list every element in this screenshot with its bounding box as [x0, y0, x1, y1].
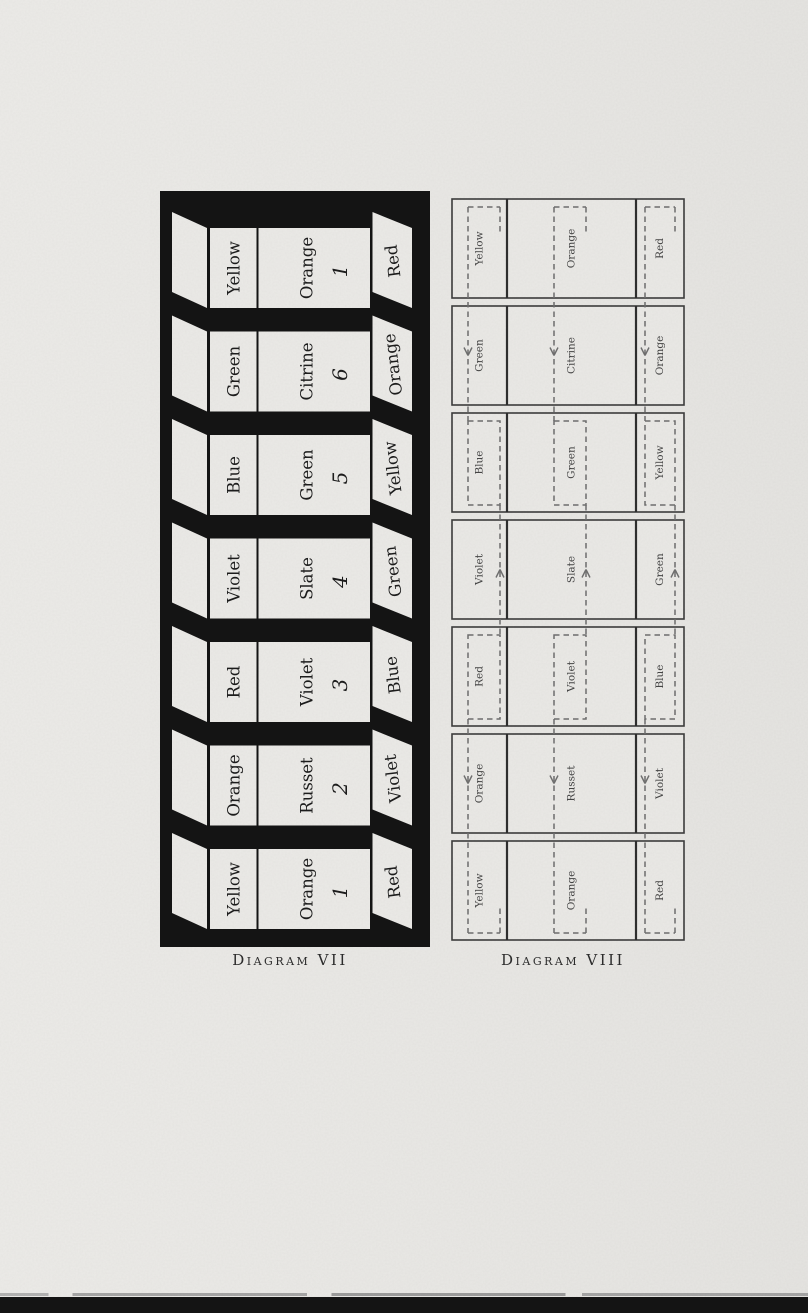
- book-page: YellowOrange1RedGreenCitrine6OrangeBlueG…: [0, 0, 808, 1313]
- viii-cell-label: Slate: [566, 556, 578, 583]
- vii-cell1-label: Orange: [225, 754, 244, 816]
- viii-cell-label: Green: [566, 446, 578, 479]
- vii-left-flap: [172, 419, 207, 515]
- viii-cell-label: Orange: [566, 229, 578, 269]
- vii-cell1-label: Blue: [225, 456, 244, 494]
- vii-left-flap: [172, 730, 207, 826]
- diagram-vii-caption: Diagram VII: [165, 951, 415, 969]
- viii-cell-label: Yellow: [474, 873, 486, 908]
- viii-cell-label: Green: [654, 553, 666, 586]
- viii-cell-label: Green: [474, 339, 486, 372]
- viii-cell-label: Red: [654, 880, 666, 901]
- viii-cell-label: Orange: [566, 871, 578, 911]
- vii-left-flap: [172, 833, 207, 929]
- vii-cell2-number: 2: [328, 782, 352, 796]
- viii-cell-label: Citrine: [566, 337, 578, 374]
- vii-right-flap-label: Red: [382, 243, 405, 278]
- viii-cell-label: Orange: [474, 764, 486, 804]
- viii-cell-label: Red: [474, 666, 486, 687]
- viii-cell-label: Russet: [566, 765, 578, 802]
- vii-cell2-number: 3: [328, 679, 352, 692]
- vii-cell2-label: Green: [298, 449, 317, 501]
- diagrams-canvas: YellowOrange1RedGreenCitrine6OrangeBlueG…: [0, 0, 808, 1313]
- vii-cell2-label: Russet: [298, 757, 317, 814]
- scan-bottom-bar: [0, 1297, 808, 1313]
- vii-cell1-label: Green: [225, 346, 244, 398]
- vii-cell1-label: Violet: [225, 554, 244, 604]
- viii-cell-label: Yellow: [474, 231, 486, 266]
- vii-cell2-label: Citrine: [298, 342, 317, 400]
- vii-left-flap: [172, 523, 207, 619]
- viii-cell-label: Blue: [474, 450, 486, 474]
- vii-cell1-label: Red: [225, 665, 244, 698]
- viii-cell-label: Red: [654, 238, 666, 259]
- vii-right-flap-label: Red: [382, 864, 405, 899]
- vii-cell2-label: Violet: [298, 657, 317, 707]
- viii-cell-label: Yellow: [654, 445, 666, 480]
- vii-cell2-number: 1: [328, 886, 352, 899]
- vii-cell2-number: 5: [328, 472, 352, 485]
- vii-left-flap: [172, 212, 207, 308]
- vii-cell2-number: 4: [328, 575, 352, 589]
- vii-left-flap: [172, 316, 207, 412]
- vii-left-flap: [172, 626, 207, 722]
- vii-cell2-label: Slate: [298, 557, 317, 600]
- viii-cell-label: Orange: [654, 336, 666, 376]
- viii-cell-label: Violet: [654, 767, 666, 800]
- vii-cell2-label: Orange: [298, 237, 317, 299]
- vii-cell1-label: Yellow: [225, 241, 244, 296]
- vii-cell2-label: Orange: [298, 858, 317, 920]
- scan-artifact-line: [0, 1293, 808, 1296]
- viii-cell-label: Blue: [654, 664, 666, 688]
- diagram-viii-caption: Diagram VIII: [438, 951, 688, 969]
- vii-cell2-number: 1: [328, 265, 352, 278]
- vii-cell2-number: 6: [328, 368, 352, 381]
- viii-cell-label: Violet: [474, 553, 486, 586]
- vii-cell1-label: Yellow: [225, 862, 244, 917]
- viii-cell-label: Violet: [566, 660, 578, 693]
